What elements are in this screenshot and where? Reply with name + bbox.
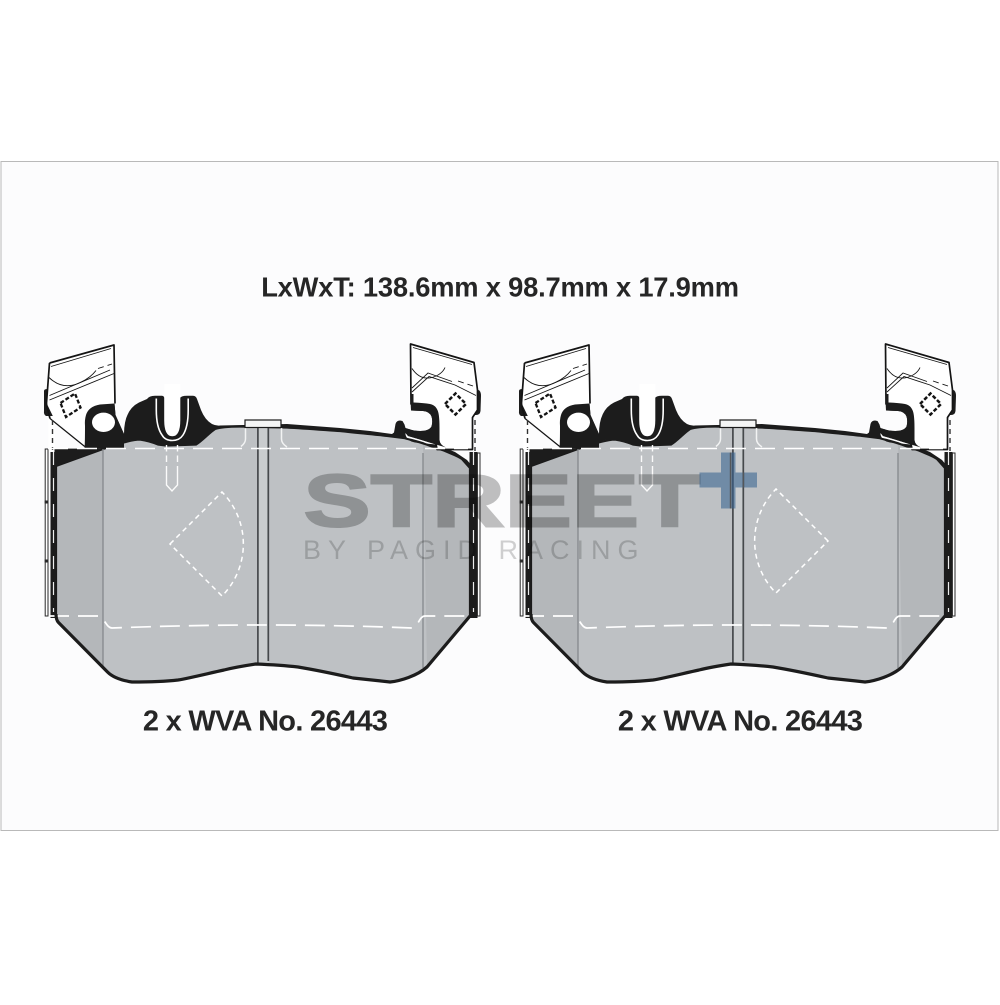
svg-text:BY PAGID RACING: BY PAGID RACING bbox=[303, 535, 646, 565]
svg-text:LxWxT: 138.6mm x 98.7mm x 17.9: LxWxT: 138.6mm x 98.7mm x 17.9mm bbox=[261, 272, 739, 303]
svg-text:2 x WVA No. 26443: 2 x WVA No. 26443 bbox=[618, 706, 863, 738]
svg-text:STREET: STREET bbox=[304, 460, 701, 543]
svg-text:2 x WVA No. 26443: 2 x WVA No. 26443 bbox=[143, 706, 388, 738]
